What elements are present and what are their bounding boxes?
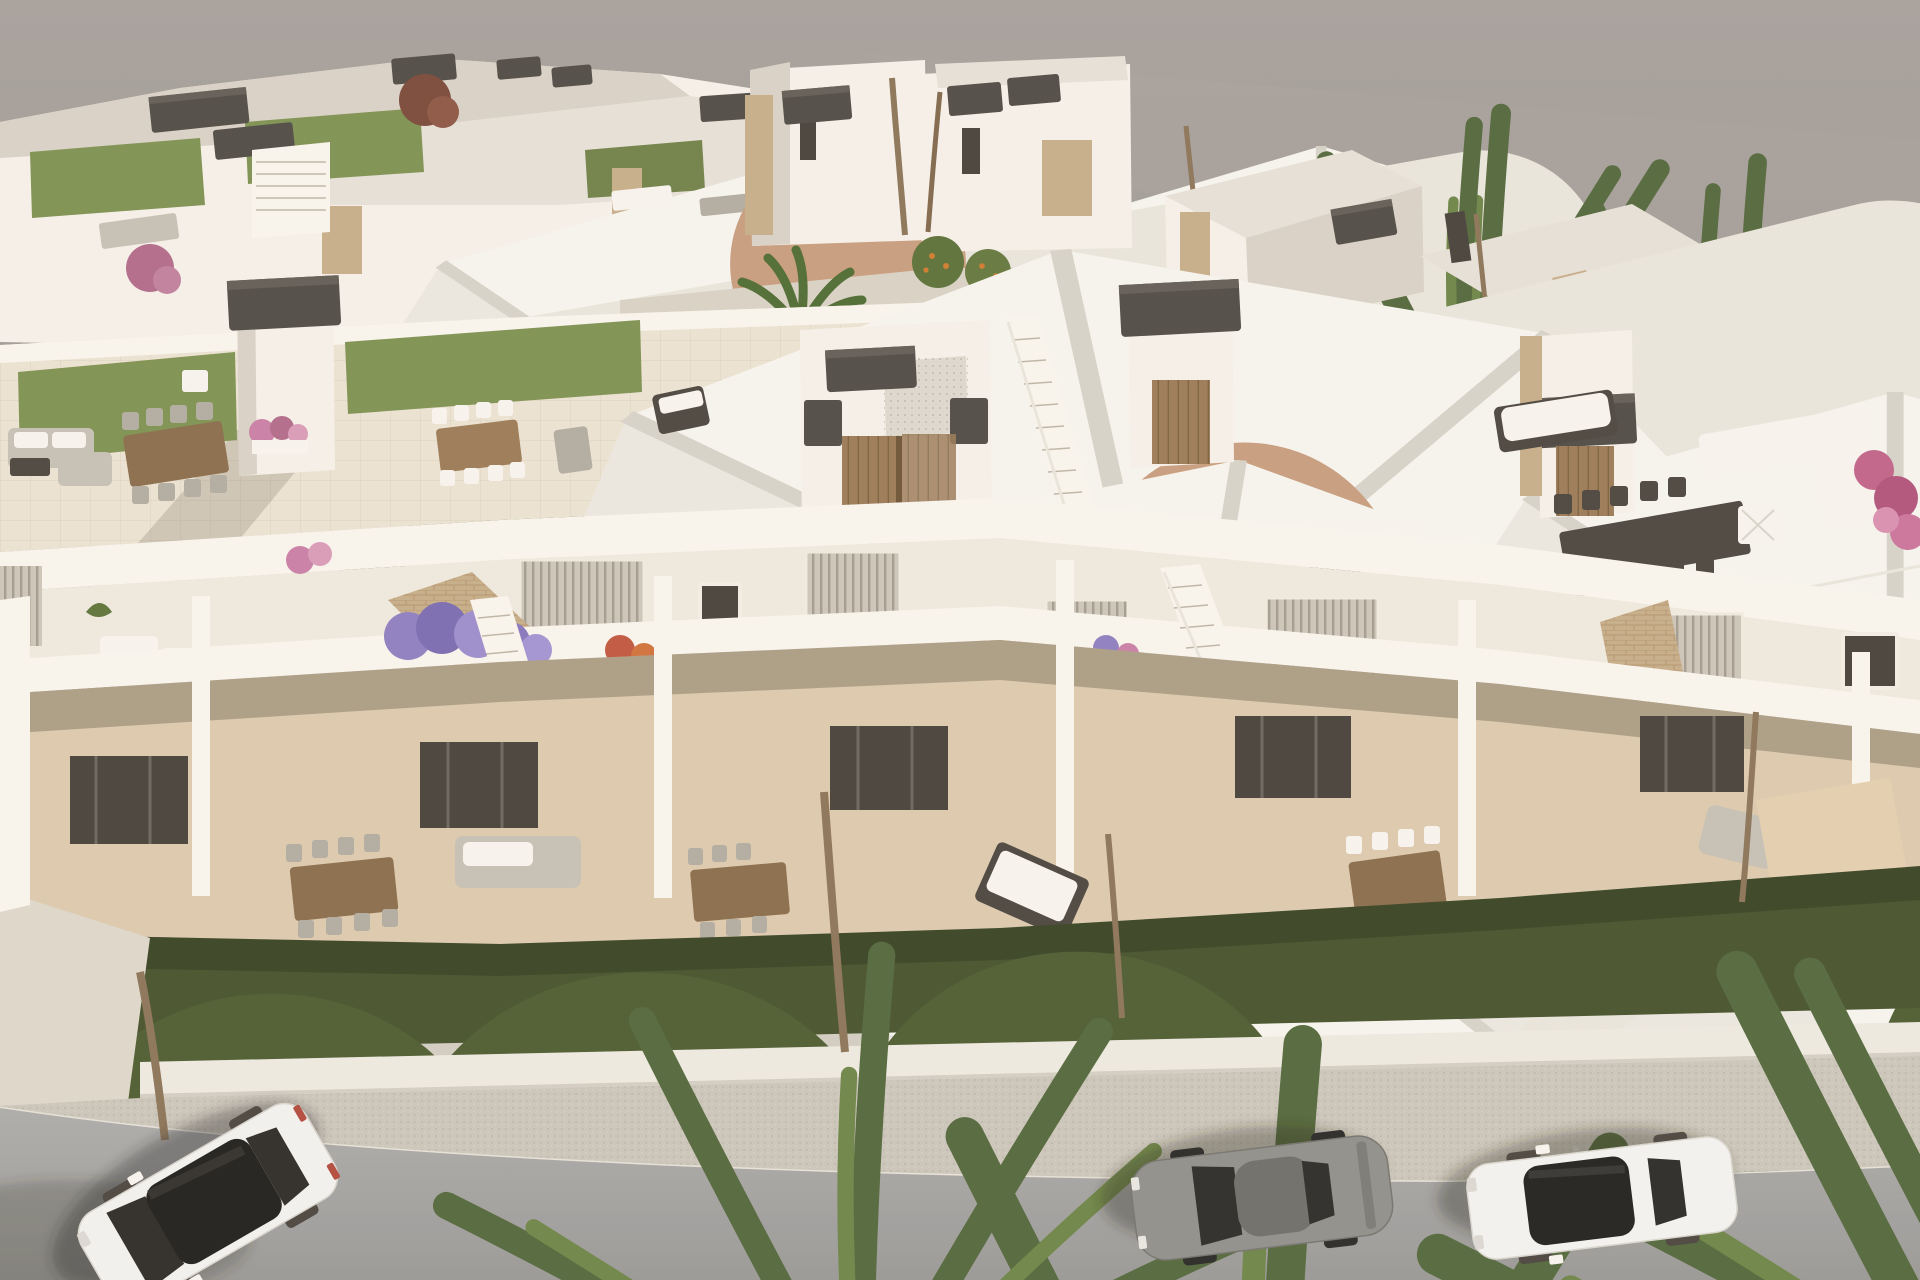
scene-canvas — [0, 0, 1920, 1280]
stair-bulkhead-3 — [1119, 279, 1242, 468]
stair-bulkhead-1 — [227, 275, 341, 476]
citrus-tree — [912, 236, 964, 288]
architectural-render — [0, 0, 1920, 1280]
